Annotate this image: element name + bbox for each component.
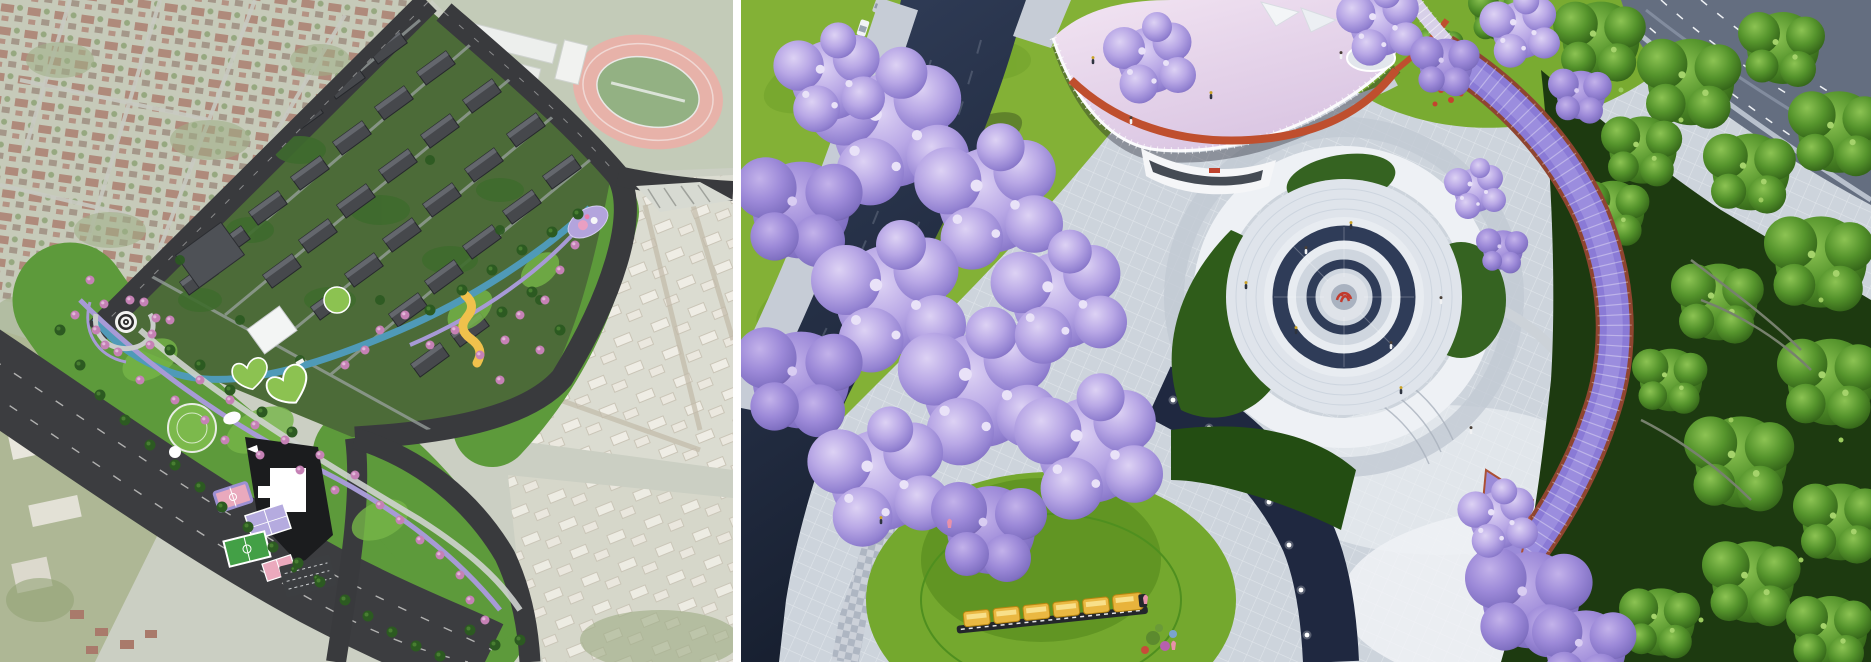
- presentation-board: [0, 0, 1871, 662]
- site-plan-canvas: [0, 0, 733, 662]
- left-panel-site-plan: [0, 0, 733, 662]
- great-lawn-circle: [168, 404, 216, 452]
- right-panel-aerial-render: [741, 0, 1871, 662]
- satellite-housing-southeast: [508, 475, 733, 662]
- panel-divider: [733, 0, 741, 662]
- lawn-circle-small: [324, 287, 350, 313]
- central-plaza-rings: [1226, 179, 1462, 415]
- render-canvas: [741, 0, 1871, 662]
- dome-canopy: [169, 446, 181, 458]
- pavilion-sign: [1209, 168, 1220, 173]
